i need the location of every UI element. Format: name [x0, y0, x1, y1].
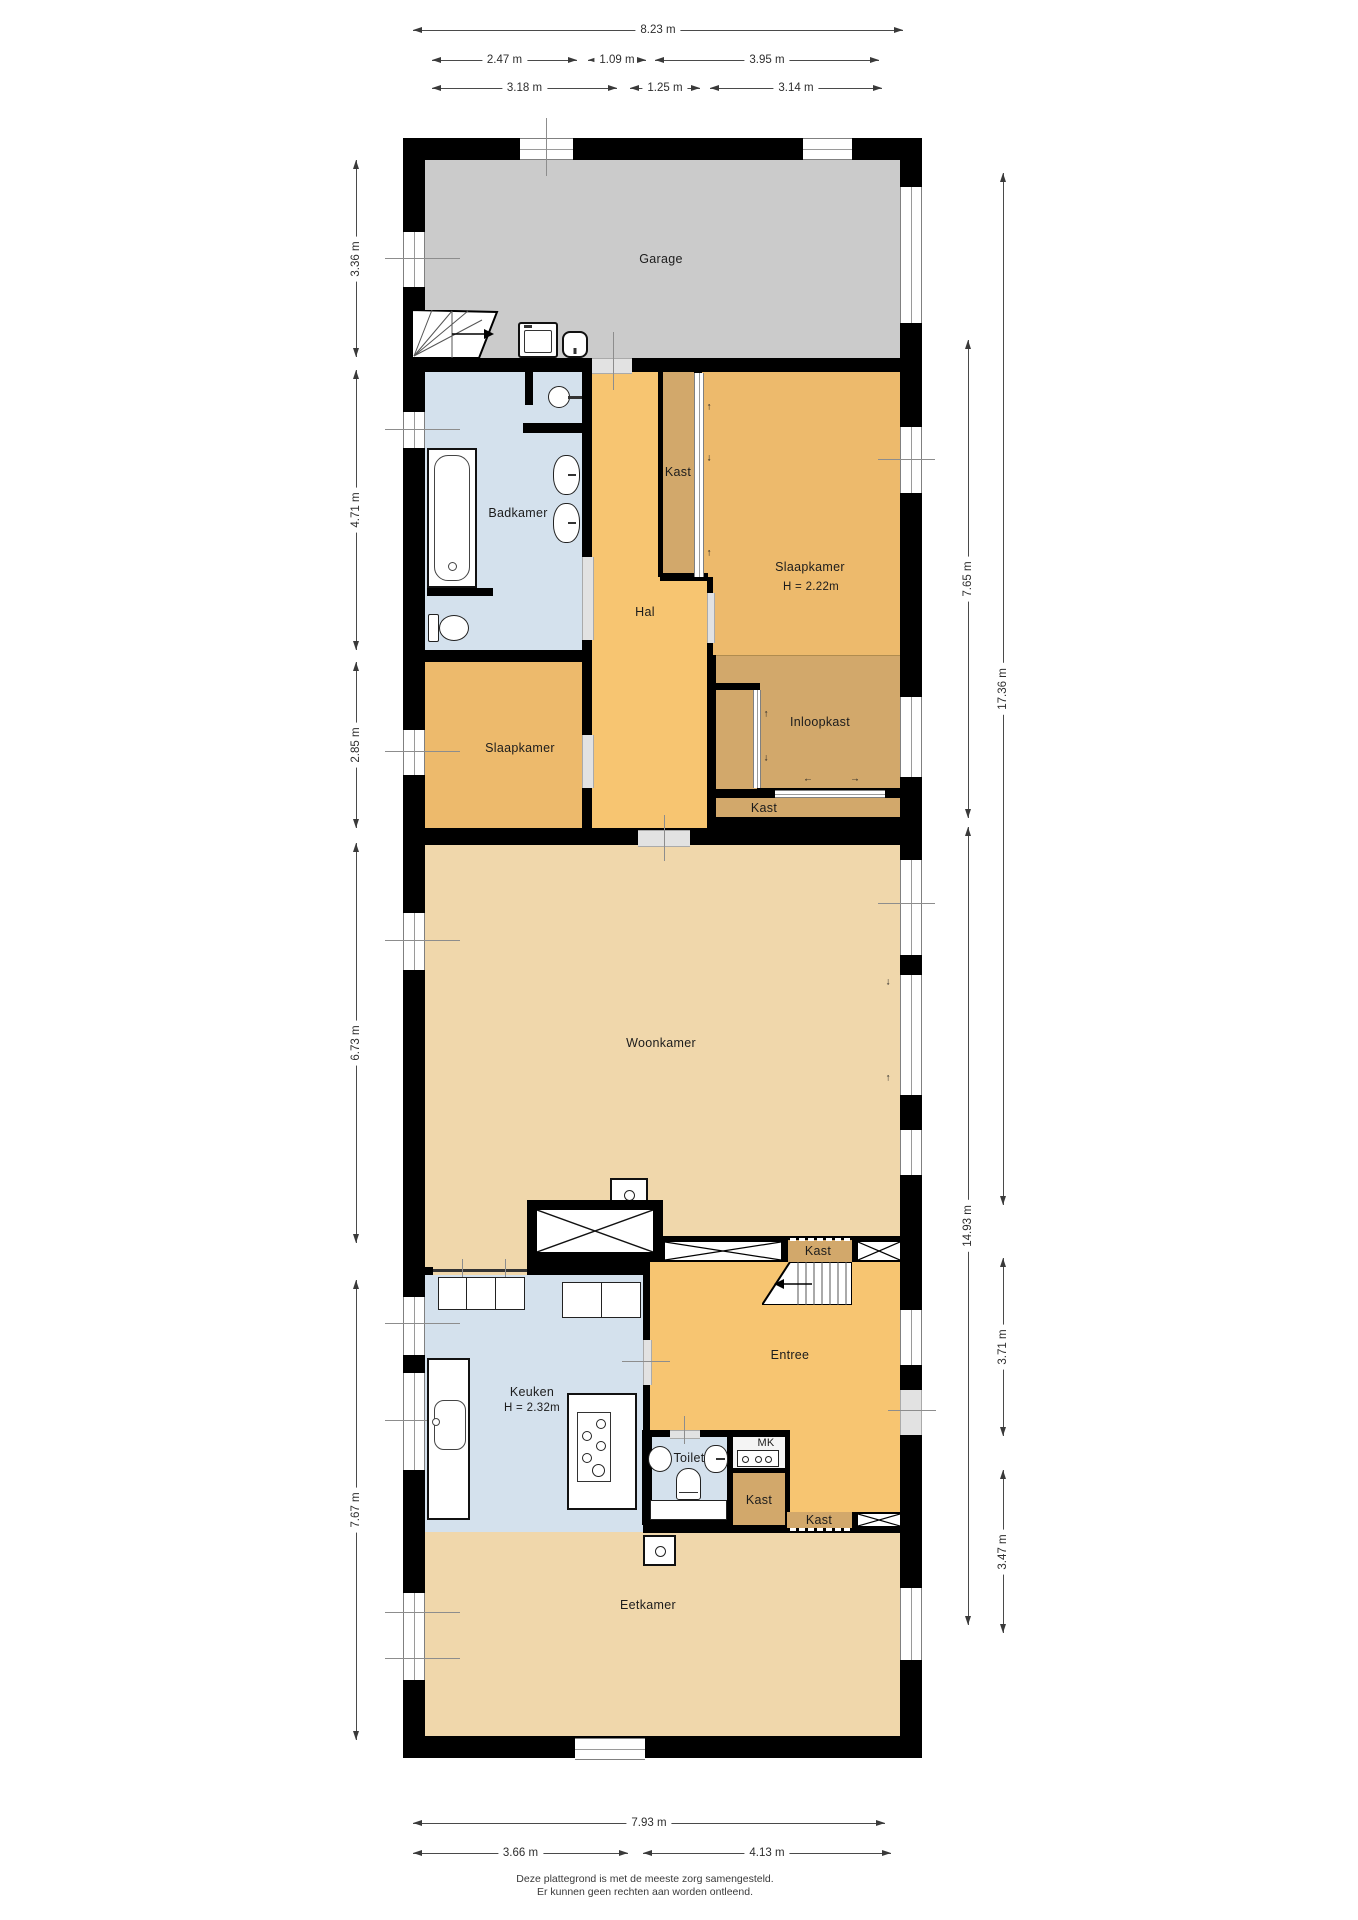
sliding-door-inloopkast	[753, 690, 761, 788]
dimension-right-outer-3: 3.47 m	[1003, 1470, 1004, 1633]
tick-woonkamer-window	[385, 940, 460, 941]
window-slaapkamer-right	[900, 427, 922, 493]
tick-garage-door	[613, 332, 614, 390]
kast2-arrow-left-icon: ←	[803, 774, 813, 785]
label-keuken: Keuken	[510, 1385, 554, 1399]
inloopkast-arrow-up-icon: ↑	[764, 709, 769, 720]
dimension-top-row2-2: 1.09 m	[588, 60, 646, 61]
label-slaapkamer-rechts-height: H = 2.22m	[783, 581, 839, 593]
disclaimer-line-2: Er kunnen geen rechten aan worden ontlee…	[537, 1886, 753, 1898]
label-keuken-height: H = 2.32m	[504, 1402, 560, 1414]
dimension-top-row2-1: 2.47 m	[432, 60, 577, 61]
sliding-door-kast2	[775, 790, 885, 798]
divider-tick-1	[462, 1259, 463, 1277]
dimension-left-5: 7.67 m	[356, 1280, 357, 1740]
label-hal: Hal	[635, 605, 655, 619]
slide-arrow-up-small-icon: ↑	[707, 548, 712, 559]
window-entree-right	[900, 1310, 922, 1365]
washbasin-round	[548, 386, 570, 408]
dimension-top-row3-3: 3.14 m	[710, 88, 882, 89]
tick-garage-top-window	[546, 118, 547, 176]
label-entree: Entree	[771, 1348, 810, 1362]
wall-hal-kast	[658, 372, 663, 577]
bathtub	[427, 448, 477, 588]
sliding-door-kast-hal	[694, 373, 704, 577]
wall-under-fireplace	[527, 1260, 643, 1275]
dashed-open-side-kast-entree	[790, 1238, 850, 1241]
room-kast-inloopkast	[716, 798, 900, 817]
door-hal-badkamer	[582, 557, 594, 640]
dimension-top-total: 8.23 m	[413, 30, 903, 31]
kast2-arrow-right-icon: →	[850, 774, 860, 785]
tick-eetkamer-window-2	[385, 1658, 460, 1659]
window-woonkamer-right-1	[900, 860, 922, 955]
label-mk: MK	[757, 1437, 774, 1449]
disclaimer-line-1: Deze plattegrond is met de meeste zorg s…	[516, 1873, 773, 1885]
front-door-right	[900, 1390, 922, 1435]
staircase-garage	[412, 310, 505, 358]
label-kast-eetkamer: Kast	[806, 1513, 832, 1527]
dimension-bottom-row2-2: 4.13 m	[643, 1853, 891, 1854]
kitchen-cabinet-5	[601, 1282, 641, 1318]
window-keuken-left-2	[403, 1373, 425, 1470]
kitchen-island	[567, 1393, 637, 1510]
dimension-bottom-total: 7.93 m	[413, 1823, 885, 1824]
wall-toilet-block-top	[642, 1430, 790, 1437]
tick-hal-woonkamer-door	[664, 815, 665, 861]
window-keuken-left-1	[403, 1297, 425, 1355]
built-in-closet-crossbox-left	[663, 1240, 783, 1262]
label-kast-inloopkast: Kast	[751, 801, 777, 815]
door-entree-toilet	[670, 1430, 700, 1439]
toilet-badkamer-bowl	[439, 615, 469, 641]
wall-badkamer-nook-v	[525, 372, 533, 405]
kitchen-counter-left	[427, 1358, 470, 1520]
stove-eetkamer	[643, 1535, 676, 1566]
window-garage-right	[900, 187, 922, 323]
wall-garage-bottom	[403, 358, 922, 372]
window-woonkamer-left	[403, 913, 425, 970]
wall-inloopkast-l-stub	[712, 683, 760, 690]
dimension-left-1: 3.36 m	[356, 160, 357, 357]
window-eetkamer-bottom	[575, 1738, 645, 1760]
built-in-closet-crossbox-bottom	[856, 1512, 902, 1528]
fireplace-shaft	[536, 1209, 654, 1253]
slide-arrow-up-icon: ↑	[707, 402, 712, 413]
window-eetkamer-right	[900, 1588, 922, 1660]
dimension-right-outer-2: 3.71 m	[1003, 1258, 1004, 1436]
label-kast-entree: Kast	[805, 1244, 831, 1258]
woonkamer-slider-arrow-down-icon: ↓	[886, 977, 891, 988]
dimension-left-3: 2.85 m	[356, 662, 357, 828]
toilet-bowl	[676, 1468, 701, 1500]
window-badkamer-left	[403, 412, 425, 448]
tick-keuken-door	[622, 1361, 670, 1362]
boiler	[562, 331, 588, 358]
meter-cabinet-unit	[737, 1450, 779, 1467]
dimension-top-row2-3: 3.95 m	[655, 60, 879, 61]
built-in-closet-crossbox-right	[856, 1240, 902, 1262]
tick-toilet-door	[684, 1416, 685, 1444]
divider-woonkamer-keuken	[433, 1269, 527, 1272]
inloopkast-arrow-down-icon: ↓	[764, 753, 769, 764]
wall-bathtub-stub	[427, 588, 493, 596]
wall-badkamer-nook-h	[523, 423, 582, 433]
dimension-bottom-row2-1: 3.66 m	[413, 1853, 628, 1854]
tick-slaapkamer-right-window	[878, 459, 935, 460]
window-eetkamer-left	[403, 1593, 425, 1680]
tick-woonkamer-right-window	[878, 903, 935, 904]
washbasin-oval-1	[553, 455, 580, 495]
label-eetkamer: Eetkamer	[620, 1598, 676, 1612]
label-garage: Garage	[639, 252, 683, 266]
staircase-entree	[762, 1262, 852, 1305]
toilet-counter	[650, 1500, 727, 1520]
window-inloopkast-right	[900, 697, 922, 777]
dimension-left-4: 6.73 m	[356, 843, 357, 1243]
kitchen-cabinet-3	[495, 1277, 525, 1310]
label-kast-gang: Kast	[746, 1493, 772, 1507]
label-inloopkast: Inloopkast	[790, 715, 850, 729]
floor-plan: ↑ ↓ ↑ ↑ ↓ ← → ↓ ↑	[0, 0, 1358, 1920]
dimension-right-outer-1: 17.36 m	[1003, 173, 1004, 1205]
dimension-left-2: 4.71 m	[356, 370, 357, 650]
window-slaapkamer-links-left	[403, 730, 425, 775]
room-hal-upper	[592, 372, 658, 577]
window-woonkamer-right-2	[900, 1130, 922, 1175]
door-hal-slaapkamer-rechts	[707, 593, 715, 643]
door-hal-slaapkamer-links	[582, 735, 594, 788]
door-keuken-entree	[643, 1340, 652, 1385]
kitchen-cabinet-2	[466, 1277, 496, 1310]
toilet-badkamer-cistern	[428, 614, 439, 642]
wall-badkamer-bottom	[403, 650, 592, 662]
kitchen-cabinet-4	[562, 1282, 602, 1318]
kitchen-cabinet-1	[438, 1277, 467, 1310]
window-garage-left	[403, 232, 425, 287]
label-slaapkamer-links: Slaapkamer	[485, 741, 555, 755]
label-kast-hal: Kast	[665, 465, 691, 479]
door-garage-hal	[592, 358, 632, 374]
window-garage-top-right	[803, 138, 852, 160]
wall-mk-right	[785, 1430, 790, 1525]
tick-badkamer-window	[385, 429, 460, 430]
room-slaapkamer-rechts	[702, 372, 900, 655]
tick-slaapkamer-links-window	[385, 751, 460, 752]
slide-arrow-down-icon: ↓	[707, 453, 712, 464]
tick-keuken-window-1	[385, 1323, 460, 1324]
tick-front-door	[888, 1410, 936, 1411]
tick-garage-window	[385, 258, 460, 259]
dimension-right-inner-1: 7.65 m	[968, 340, 969, 818]
dimension-top-row3-2: 1.25 m	[630, 88, 700, 89]
label-toilet: Toilet	[674, 1451, 705, 1465]
toilet-sink-left	[648, 1446, 672, 1472]
dashed-open-side-kast-eetkamer	[790, 1528, 850, 1531]
label-slaapkamer-rechts: Slaapkamer	[775, 560, 845, 574]
dimension-top-row3-1: 3.18 m	[432, 88, 617, 89]
woonkamer-slider-arrow-up-icon: ↑	[886, 1073, 891, 1084]
toilet-sink-right	[704, 1445, 728, 1473]
label-woonkamer: Woonkamer	[626, 1036, 696, 1050]
dimension-right-inner-2: 14.93 m	[968, 827, 969, 1625]
washing-machine	[518, 322, 558, 358]
label-badkamer: Badkamer	[488, 506, 547, 520]
washbasin-round-tap	[568, 396, 582, 399]
sliding-door-woonkamer-right	[900, 975, 922, 1095]
tick-eetkamer-window-1	[385, 1612, 460, 1613]
divider-tick-2	[505, 1259, 506, 1277]
wall-hal-inloopkast	[707, 655, 716, 788]
washbasin-oval-2	[553, 503, 580, 543]
wall-kast2-bottom	[757, 817, 903, 828]
